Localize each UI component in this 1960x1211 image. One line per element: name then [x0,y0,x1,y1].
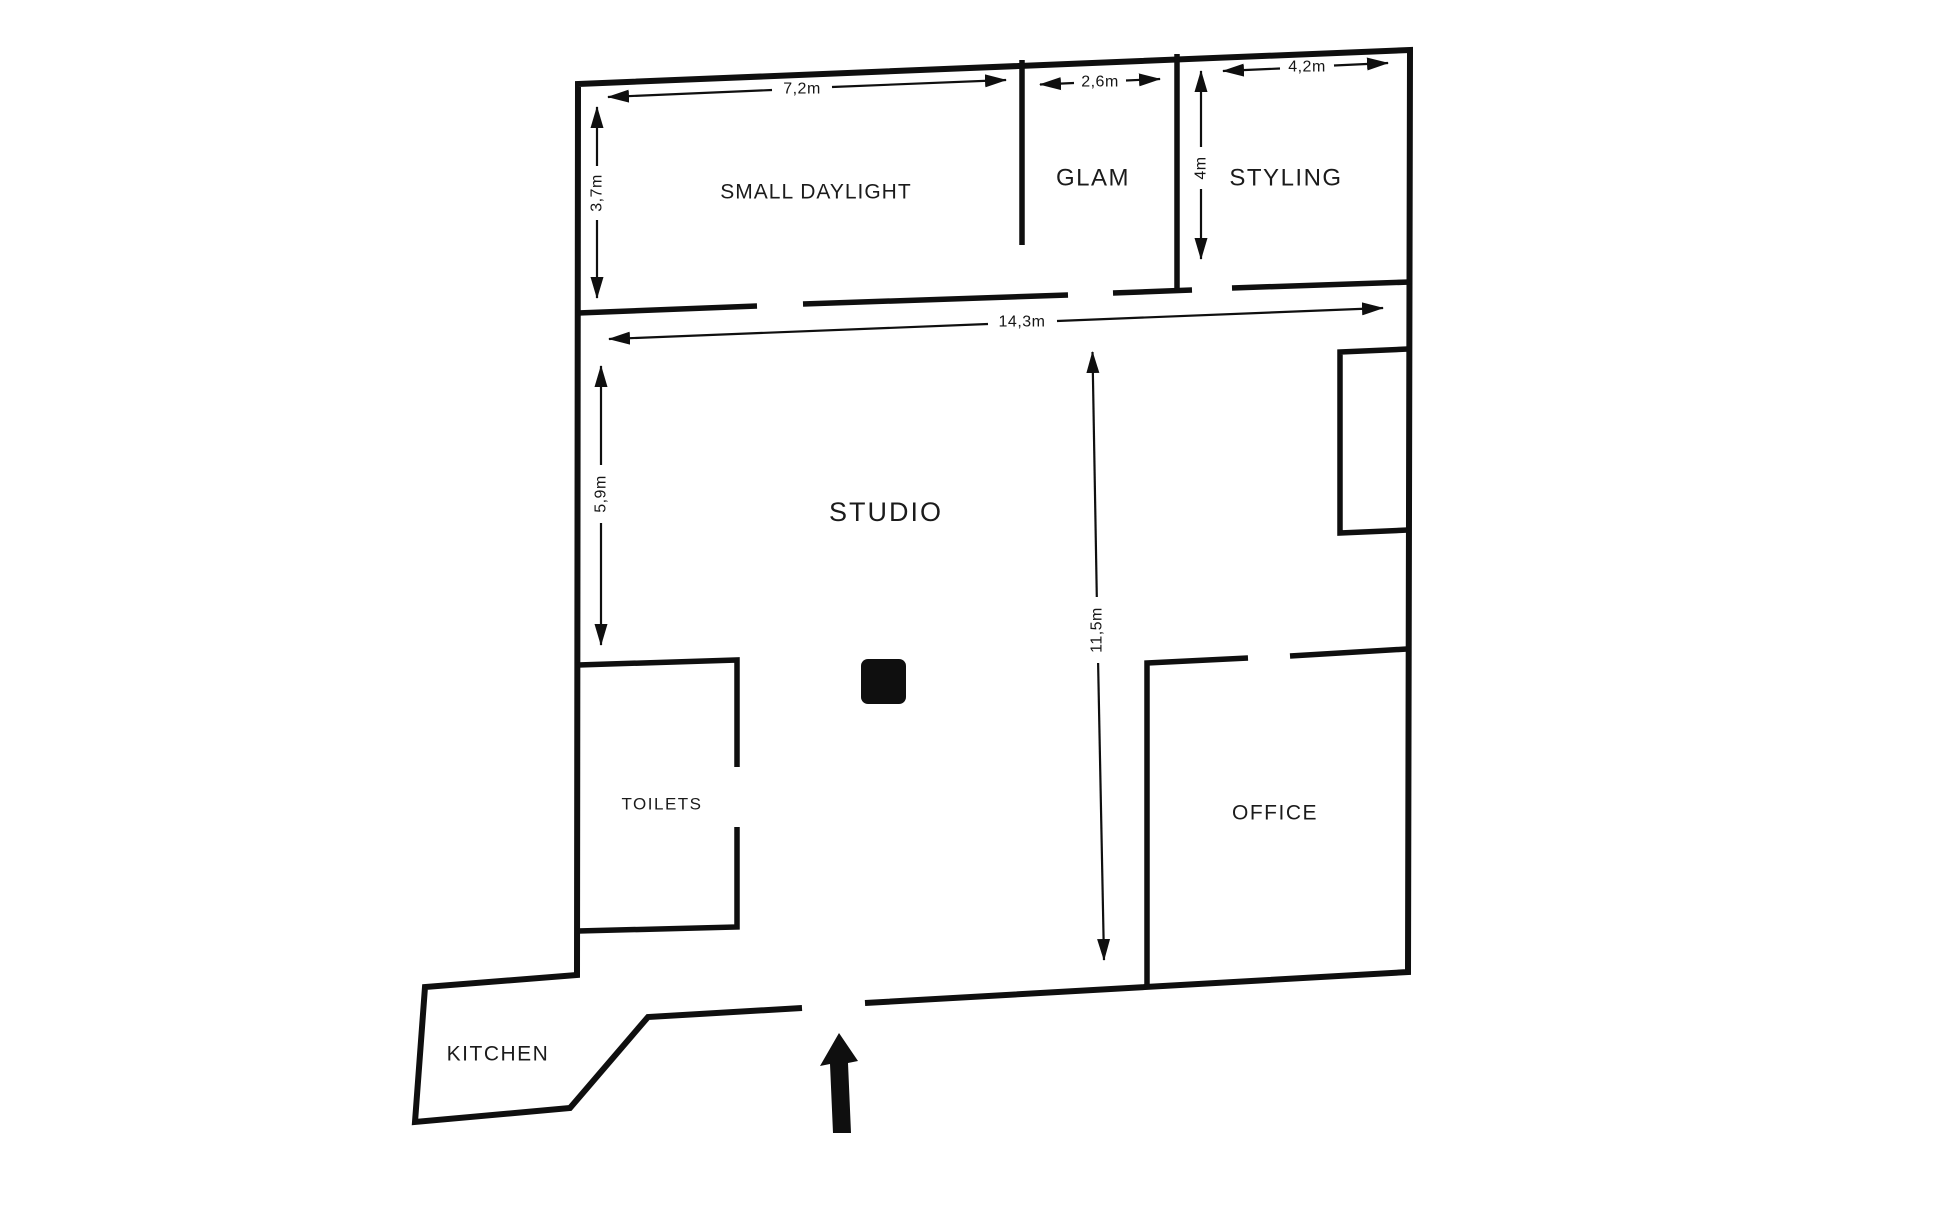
wall-outer-boundary [415,50,1410,1122]
floor-plan: 7,2m 2,6m 4,2m 3,7m 4m 14,3m 5,9m 11,5m … [0,0,1960,1211]
wall-studio-north-seg2 [803,295,1068,304]
wall-office-top-right [1290,649,1407,656]
dim-small-daylight-width-line-right [832,80,1006,87]
room-label-glam: GLAM [1056,165,1130,192]
dim-studio-width-line-left [609,324,988,339]
dim-styling-width-line-left [1223,69,1280,72]
dim-styling-width-label: 4,2m [1288,59,1326,76]
wall-studio-north-seg1 [578,306,757,313]
entrance-arrow-icon [820,1033,858,1133]
dim-studio-height-right-line-top [1093,352,1097,597]
dim-studio-height-right-line-bottom [1098,663,1104,960]
room-label-studio: STUDIO [829,497,943,527]
dim-glam-width-line-right [1126,79,1160,81]
wall-studio-north-seg3 [1113,290,1192,293]
dim-small-daylight-width-line-left [608,90,772,97]
dimension-annotations: 7,2m 2,6m 4,2m 3,7m 4m 14,3m 5,9m 11,5m [589,59,1389,961]
dim-small-daylight-height-label: 3,7m [589,174,606,212]
room-label-small-daylight: SMALL DAYLIGHT [720,181,911,204]
pillar-icon [861,659,906,704]
room-label-styling: STYLING [1229,165,1342,192]
dim-studio-width-label: 14,3m [999,314,1046,331]
dim-glam-width-line-left [1040,83,1074,85]
dim-glam-width-label: 2,6m [1081,74,1119,91]
dim-studio-width-line-right [1057,308,1383,321]
wall-toilets-lower [578,827,737,931]
dim-small-daylight-width-label: 7,2m [783,81,821,98]
room-label-office: OFFICE [1232,802,1318,825]
dim-styling-width-line-right [1334,63,1388,66]
floor-plan-drawing: 7,2m 2,6m 4,2m 3,7m 4m 14,3m 5,9m 11,5m … [0,0,1960,1211]
dim-studio-height-left-label: 5,9m [593,475,610,513]
dim-studio-height-right-label: 11,5m [1089,607,1106,653]
walls [415,50,1410,1122]
wall-toilets-upper [578,660,737,767]
room-label-kitchen: KITCHEN [447,1043,550,1066]
wall-studio-north-seg4 [1232,282,1410,288]
room-label-toilets: TOILETS [621,795,702,814]
dim-styling-height-label: 4m [1193,156,1210,179]
wall-niche [1340,349,1408,533]
